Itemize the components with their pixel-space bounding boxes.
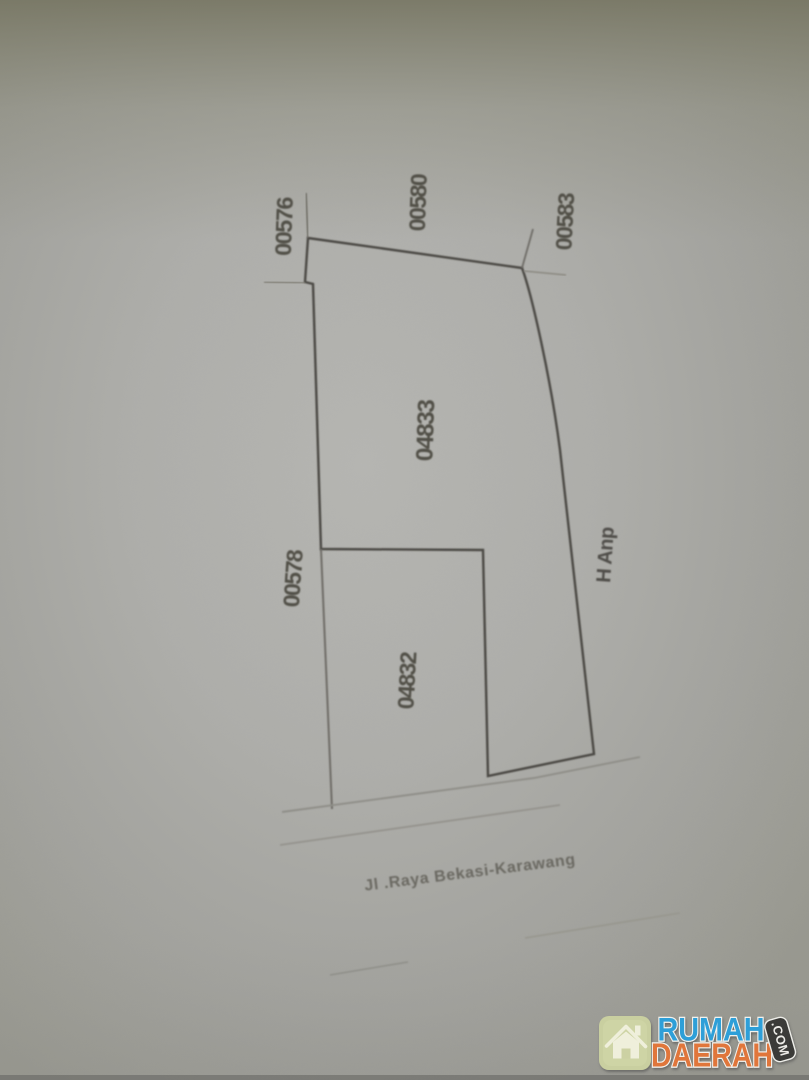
svg-text:00583: 00583	[551, 192, 580, 250]
svg-text:00580: 00580	[404, 174, 432, 232]
svg-text:00576: 00576	[270, 196, 298, 256]
svg-text:H Anp: H Anp	[593, 526, 619, 583]
svg-text:DAERAH: DAERAH	[651, 1037, 773, 1074]
svg-text:04832: 04832	[393, 651, 422, 709]
svg-text:04833: 04833	[411, 399, 440, 461]
svg-text:00578: 00578	[278, 548, 308, 608]
